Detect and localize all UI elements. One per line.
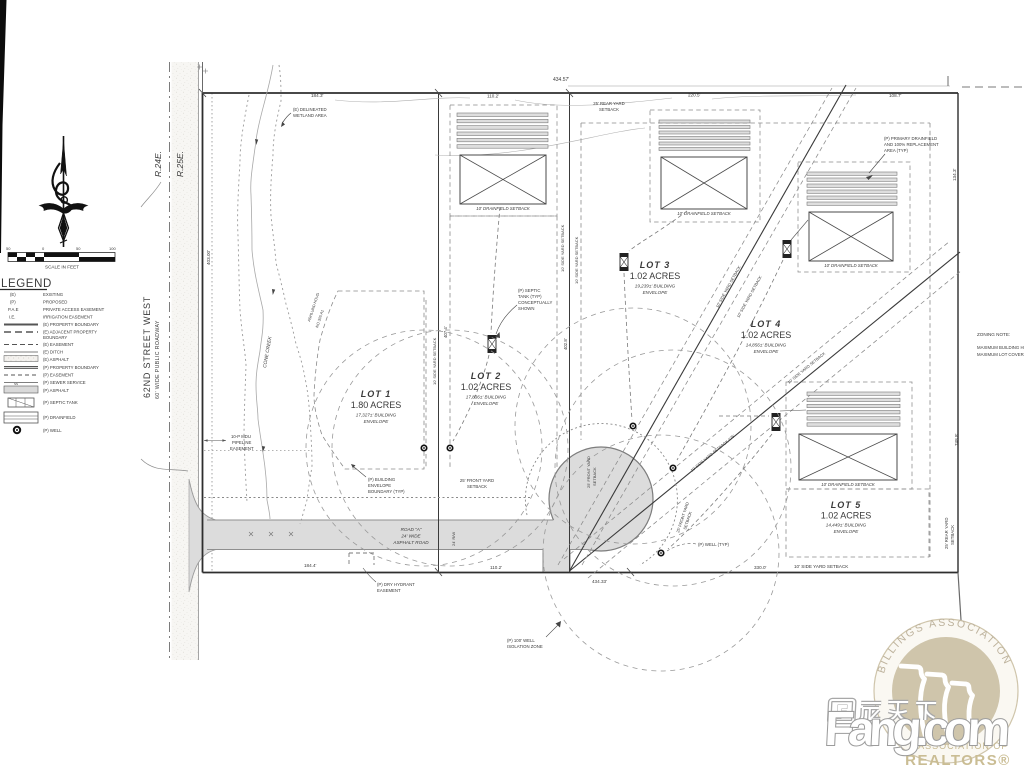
svg-text:(E): (E) <box>10 292 16 297</box>
svg-text:LOT 1: LOT 1 <box>361 389 392 399</box>
svg-text:62ND STREET WEST: 62ND STREET WEST <box>142 296 152 398</box>
svg-text:(E) ASPHALT: (E) ASPHALT <box>43 357 69 362</box>
svg-text:(P) SEWER SERVICE: (P) SEWER SERVICE <box>43 380 86 385</box>
svg-text:NO 305 A1: NO 305 A1 <box>315 309 325 328</box>
svg-text:SETBACK: SETBACK <box>950 525 955 545</box>
svg-text:(E) PROPERTY BOUNDARY: (E) PROPERTY BOUNDARY <box>43 322 99 327</box>
svg-text:BOUNDARY: BOUNDARY <box>43 335 67 340</box>
svg-text:10' SIDE YARD SETBACK: 10' SIDE YARD SETBACK <box>574 236 579 284</box>
svg-text:PROPOSED: PROPOSED <box>43 300 67 305</box>
svg-text:(P) WELL: (P) WELL <box>43 428 62 433</box>
svg-text:LOT 2: LOT 2 <box>471 371 502 381</box>
svg-text:ENVELOPE: ENVELOPE <box>754 349 780 354</box>
svg-text:24' R/W: 24' R/W <box>451 532 456 546</box>
svg-text:220.5': 220.5' <box>688 93 700 98</box>
svg-text:14,449±' BUILDING: 14,449±' BUILDING <box>826 523 867 528</box>
svg-text:10' SIDE YARD SETBACK: 10' SIDE YARD SETBACK <box>794 564 849 569</box>
svg-text:434.33': 434.33' <box>592 579 607 584</box>
svg-text:AND 100% REPLACEMENT: AND 100% REPLACEMENT <box>884 142 939 147</box>
svg-text:25' REAR YARD: 25' REAR YARD <box>944 518 949 549</box>
svg-text:407.4': 407.4' <box>443 326 448 338</box>
svg-text:24' WIDE: 24' WIDE <box>400 534 421 539</box>
svg-text:WETLAND AREA: WETLAND AREA <box>293 113 327 118</box>
svg-text:(P) EASEMENT: (P) EASEMENT <box>43 373 74 378</box>
svg-text:(P) PROPERTY BOUNDARY: (P) PROPERTY BOUNDARY <box>43 365 99 370</box>
svg-text:134.3': 134.3' <box>952 169 957 181</box>
svg-text:25' FRONT YARD: 25' FRONT YARD <box>586 456 591 488</box>
svg-text:1.80 ACRES: 1.80 ACRES <box>351 400 402 410</box>
svg-text:PRIVATE ACCESS EASEMENT: PRIVATE ACCESS EASEMENT <box>43 307 105 312</box>
svg-text:LEGEND: LEGEND <box>1 278 52 290</box>
svg-text:P.A.E: P.A.E <box>8 307 19 312</box>
svg-text:10-P MDU: 10-P MDU <box>231 434 251 439</box>
svg-text:(P) DRAINFIELD: (P) DRAINFIELD <box>43 415 75 420</box>
svg-text:10' DRAINFIELD SETBACK: 10' DRAINFIELD SETBACK <box>821 482 876 487</box>
svg-text:SETBACK: SETBACK <box>599 107 619 112</box>
svg-text:19,239±' BUILDING: 19,239±' BUILDING <box>635 284 676 289</box>
svg-text:(E) DELINEATED: (E) DELINEATED <box>293 107 327 112</box>
svg-text:SETBACK: SETBACK <box>467 484 487 489</box>
svg-text:CONCEPTUALLY: CONCEPTUALLY <box>518 300 552 305</box>
svg-text:(P) ASPHALT: (P) ASPHALT <box>43 388 69 393</box>
svg-text:ISOLATION ZONE: ISOLATION ZONE <box>507 644 543 649</box>
svg-text:(P) BUILDING: (P) BUILDING <box>368 477 396 482</box>
svg-text:(P) SEPTIC TANK: (P) SEPTIC TANK <box>43 400 78 405</box>
svg-text:330.0': 330.0' <box>754 565 766 570</box>
svg-text:R.24E.: R.24E. <box>153 151 163 177</box>
svg-text:(P) DRY HYDRANT: (P) DRY HYDRANT <box>377 582 415 587</box>
svg-text:108.7': 108.7' <box>889 93 901 98</box>
svg-text:PIPELINE: PIPELINE <box>232 440 251 445</box>
svg-text:10' SIDE YARD SETBACK: 10' SIDE YARD SETBACK <box>736 274 763 318</box>
svg-text:0: 0 <box>42 246 45 251</box>
svg-text:60' WIDE PUBLIC ROADWAY: 60' WIDE PUBLIC ROADWAY <box>155 320 161 399</box>
svg-text:(P) WELL (TYP): (P) WELL (TYP) <box>698 542 729 547</box>
svg-text:10' SIDE YARD SETBACK: 10' SIDE YARD SETBACK <box>786 351 826 385</box>
svg-text:LOT 4: LOT 4 <box>751 319 782 329</box>
svg-text:AREA (TYP): AREA (TYP) <box>884 148 908 153</box>
svg-text:50: 50 <box>76 246 81 251</box>
svg-text:1.02 ACRES: 1.02 ACRES <box>461 382 512 392</box>
svg-text:403.00': 403.00' <box>206 250 211 265</box>
svg-text:(E) DITCH: (E) DITCH <box>43 350 63 355</box>
svg-text:10' SIDE YARD SETBACK: 10' SIDE YARD SETBACK <box>560 224 565 272</box>
svg-text:EXISTING: EXISTING <box>43 292 64 297</box>
svg-text:(P): (P) <box>10 300 16 305</box>
svg-text:17,327±' BUILDING: 17,327±' BUILDING <box>356 413 397 418</box>
svg-text:1.02 ACRES: 1.02 ACRES <box>630 271 681 281</box>
svg-text:ENVELOPE: ENVELOPE <box>643 290 669 295</box>
svg-text:10' SIDE YARD SETBACK: 10' SIDE YARD SETBACK <box>432 337 437 385</box>
svg-text:25' REAR YARD: 25' REAR YARD <box>593 101 624 106</box>
svg-text:SHOWN: SHOWN <box>518 306 534 311</box>
svg-text:ENVELOPE: ENVELOPE <box>474 401 500 406</box>
svg-text:MAXIMUM BUILDING HEIGHT: MAXIMUM BUILDING HEIGHT <box>977 345 1024 350</box>
svg-text:MAXIMUM LOT COVERAGE: MAXIMUM LOT COVERAGE <box>977 352 1024 357</box>
svg-text:(E) ADJACENT PROPERTY: (E) ADJACENT PROPERTY <box>43 330 97 335</box>
svg-text:SETBACK: SETBACK <box>592 467 597 486</box>
svg-text:10' DRAINFIELD SETBACK: 10' DRAINFIELD SETBACK <box>824 263 879 268</box>
svg-text:TANK (TYP): TANK (TYP) <box>518 294 542 299</box>
svg-text:(P) SEPTIC: (P) SEPTIC <box>518 288 540 293</box>
svg-text:CONE CREEK: CONE CREEK <box>262 335 274 368</box>
svg-text:SS: SS <box>14 382 18 386</box>
svg-text:(P) 100' WELL: (P) 100' WELL <box>507 638 535 643</box>
svg-text:50: 50 <box>6 246 11 251</box>
svg-text:LOT 3: LOT 3 <box>640 260 671 270</box>
svg-text:EASEMENT: EASEMENT <box>230 446 254 451</box>
svg-text:10' SIDE YARD SETBACK 475': 10' SIDE YARD SETBACK 475' <box>689 433 735 473</box>
svg-text:LOT 5: LOT 5 <box>831 500 862 510</box>
svg-text:110.2': 110.2' <box>487 94 499 99</box>
svg-text:1.02 ACRES: 1.02 ACRES <box>821 511 872 521</box>
svg-text:402.8': 402.8' <box>563 338 568 350</box>
svg-text:110.2': 110.2' <box>490 565 502 570</box>
svg-text:I.E.: I.E. <box>9 315 15 320</box>
svg-text:ENVELOPE: ENVELOPE <box>368 483 391 488</box>
svg-text:1.02 ACRES: 1.02 ACRES <box>741 330 792 340</box>
svg-text:EASEMENT: EASEMENT <box>377 588 401 593</box>
svg-text:ROAD "A": ROAD "A" <box>401 527 422 532</box>
svg-text:10' DRAINFIELD SETBACK: 10' DRAINFIELD SETBACK <box>476 206 531 211</box>
svg-text:14,856±' BUILDING: 14,856±' BUILDING <box>746 343 787 348</box>
svg-text:Fang.com: Fang.com <box>823 703 1009 756</box>
svg-text:R.25E.: R.25E. <box>175 151 185 177</box>
svg-text:ENVELOPE: ENVELOPE <box>834 529 860 534</box>
svg-text:17,836±' BUILDING: 17,836±' BUILDING <box>466 395 507 400</box>
svg-text:SCALE IN FEET: SCALE IN FEET <box>45 265 79 270</box>
svg-text:ZONING NOTE:: ZONING NOTE: <box>977 332 1010 337</box>
svg-text:(P) PRIMARY DRAINFIELD: (P) PRIMARY DRAINFIELD <box>884 136 937 141</box>
svg-text:ASPHALT ROAD: ASPHALT ROAD <box>392 540 429 545</box>
svg-text:(E) EASEMENT: (E) EASEMENT <box>43 342 74 347</box>
svg-text:IRRIGATION EASEMENT: IRRIGATION EASEMENT <box>43 315 93 320</box>
svg-text:25' FRONT YARD: 25' FRONT YARD <box>460 478 494 483</box>
svg-text:748.8': 748.8' <box>954 434 959 446</box>
svg-text:184.4': 184.4' <box>304 563 316 568</box>
svg-text:100: 100 <box>109 246 116 251</box>
svg-text:10' SIDE YARD SETBACK: 10' SIDE YARD SETBACK <box>715 264 742 308</box>
svg-text:184.3': 184.3' <box>311 93 323 98</box>
svg-text:ENVELOPE: ENVELOPE <box>364 419 390 424</box>
svg-text:BOUNDARY (TYP): BOUNDARY (TYP) <box>368 489 405 494</box>
svg-text:434.57': 434.57' <box>553 77 569 83</box>
